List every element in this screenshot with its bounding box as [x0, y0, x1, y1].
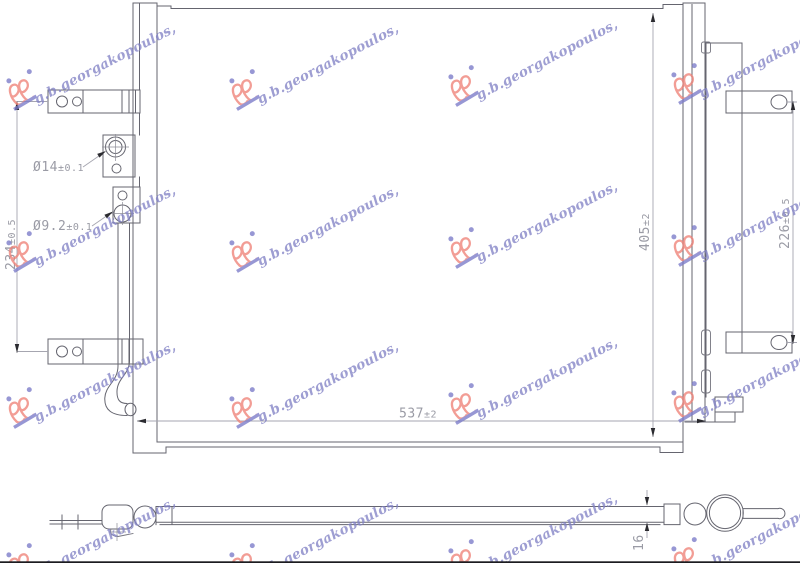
side-tank-circle: [684, 503, 706, 525]
mounting-bracket-right-bottom: [726, 332, 792, 353]
watermark: [228, 21, 402, 110]
watermark-layer: [5, 15, 800, 563]
watermark: [670, 333, 800, 422]
watermark: [5, 183, 179, 272]
svg-text:16: 16: [632, 534, 647, 551]
watermark: [447, 491, 621, 563]
side-pipe: [50, 515, 102, 529]
watermark: [5, 21, 179, 110]
svg-text:234±0.5: 234±0.5: [4, 219, 19, 270]
watermark: [447, 17, 621, 106]
watermark: [228, 183, 402, 272]
svg-text:405±2: 405±2: [638, 213, 653, 251]
watermark: [447, 335, 621, 424]
watermark: [228, 339, 402, 428]
watermark: [670, 177, 800, 266]
watermark: [670, 15, 800, 104]
condenser-outline: [133, 3, 715, 453]
dimension-core-height: 405±2: [638, 13, 655, 437]
mounting-bracket-right-top: [726, 91, 792, 113]
side-bracket-arm: [743, 508, 785, 518]
watermark: [447, 179, 621, 268]
svg-text:537±2: 537±2: [399, 407, 437, 422]
dimension-inlet-port: Ø14±0.1: [33, 151, 106, 175]
watermark: [5, 339, 179, 428]
front-view: [48, 3, 792, 453]
technical-drawing: g.b.georgakopoulos,: [0, 0, 800, 563]
watermark: [228, 495, 402, 563]
inlet-fitting: [102, 134, 135, 177]
watermark: [670, 489, 800, 563]
svg-text:Ø14±0.1: Ø14±0.1: [33, 160, 84, 175]
dimension-core-thickness: 16: [632, 490, 649, 551]
side-drier-circle: [707, 495, 744, 532]
watermark: [5, 495, 179, 563]
dimension-core-width: 537±2: [137, 407, 706, 424]
